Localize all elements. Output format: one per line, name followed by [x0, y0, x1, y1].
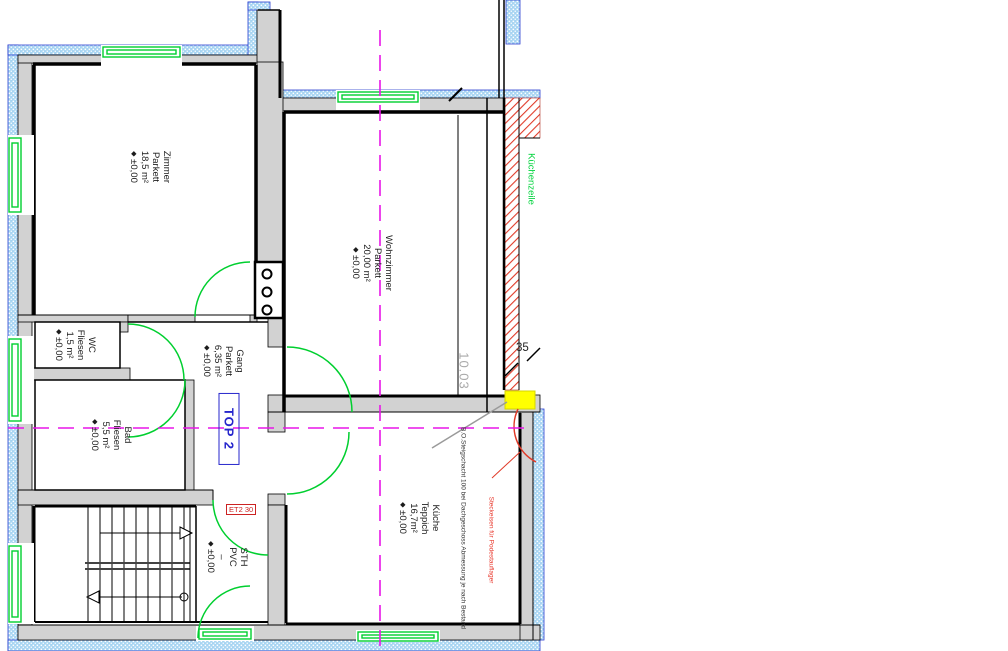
note-steckeisen: Steckeisen für Podestauflager [486, 497, 497, 584]
door-wc [128, 324, 184, 380]
unit-label-top2: TOP 2 [222, 393, 235, 465]
level-marker-icon: ◆ [399, 502, 406, 507]
door-tag-label: ET2 30 [226, 504, 256, 515]
level-marker-icon: ◆ [352, 247, 359, 252]
kitchen-unit-label: Küchenzeile [526, 153, 537, 205]
room-label-zimmer: Zimmer Parkett 18,5 m² ◆ ±0,00 [128, 151, 172, 183]
room-label-gang: Gang Parkett 6,35 m² ◆ ±0,00 [201, 345, 245, 377]
room-label-kueche: Küche Teppich 16,7m² ◆ ±0,00 [397, 502, 441, 535]
floor-plan-screenshot: Zimmer Parkett 18,5 m² ◆ ±0,00 Wohnzimme… [0, 0, 1008, 651]
door-kueche [287, 432, 349, 494]
dimension-height: 10.03 [459, 352, 470, 390]
level-marker-icon: ◆ [207, 541, 214, 546]
room-label-wc: WC Fliesen 1,5 m² ◆ ±0,00 [53, 329, 97, 361]
level-marker-icon: ◆ [55, 329, 62, 334]
stairs [85, 506, 192, 622]
room-label-sth: STH PVC – ◆ ±0,00 [205, 541, 249, 573]
level-marker-icon: ◆ [91, 419, 98, 424]
door-zimmer [195, 262, 250, 317]
room-label-wohnzimmer: Wohnzimmer Parkett 20,00 m² ◆ ±0,00 [350, 235, 394, 291]
room-label-bad: Bad Fliesen 5,5 m² ◆ ±0,00 [89, 419, 133, 451]
level-marker-icon: ◆ [203, 345, 210, 350]
note-shaft: B.O.Steigschacht 100 bei Dachgeschoss Ab… [458, 427, 469, 629]
installation-shaft [255, 262, 283, 318]
yellow-marker [505, 391, 535, 409]
level-marker-icon: ◆ [130, 151, 137, 156]
dimension-wall-thickness: 35 [516, 342, 529, 354]
